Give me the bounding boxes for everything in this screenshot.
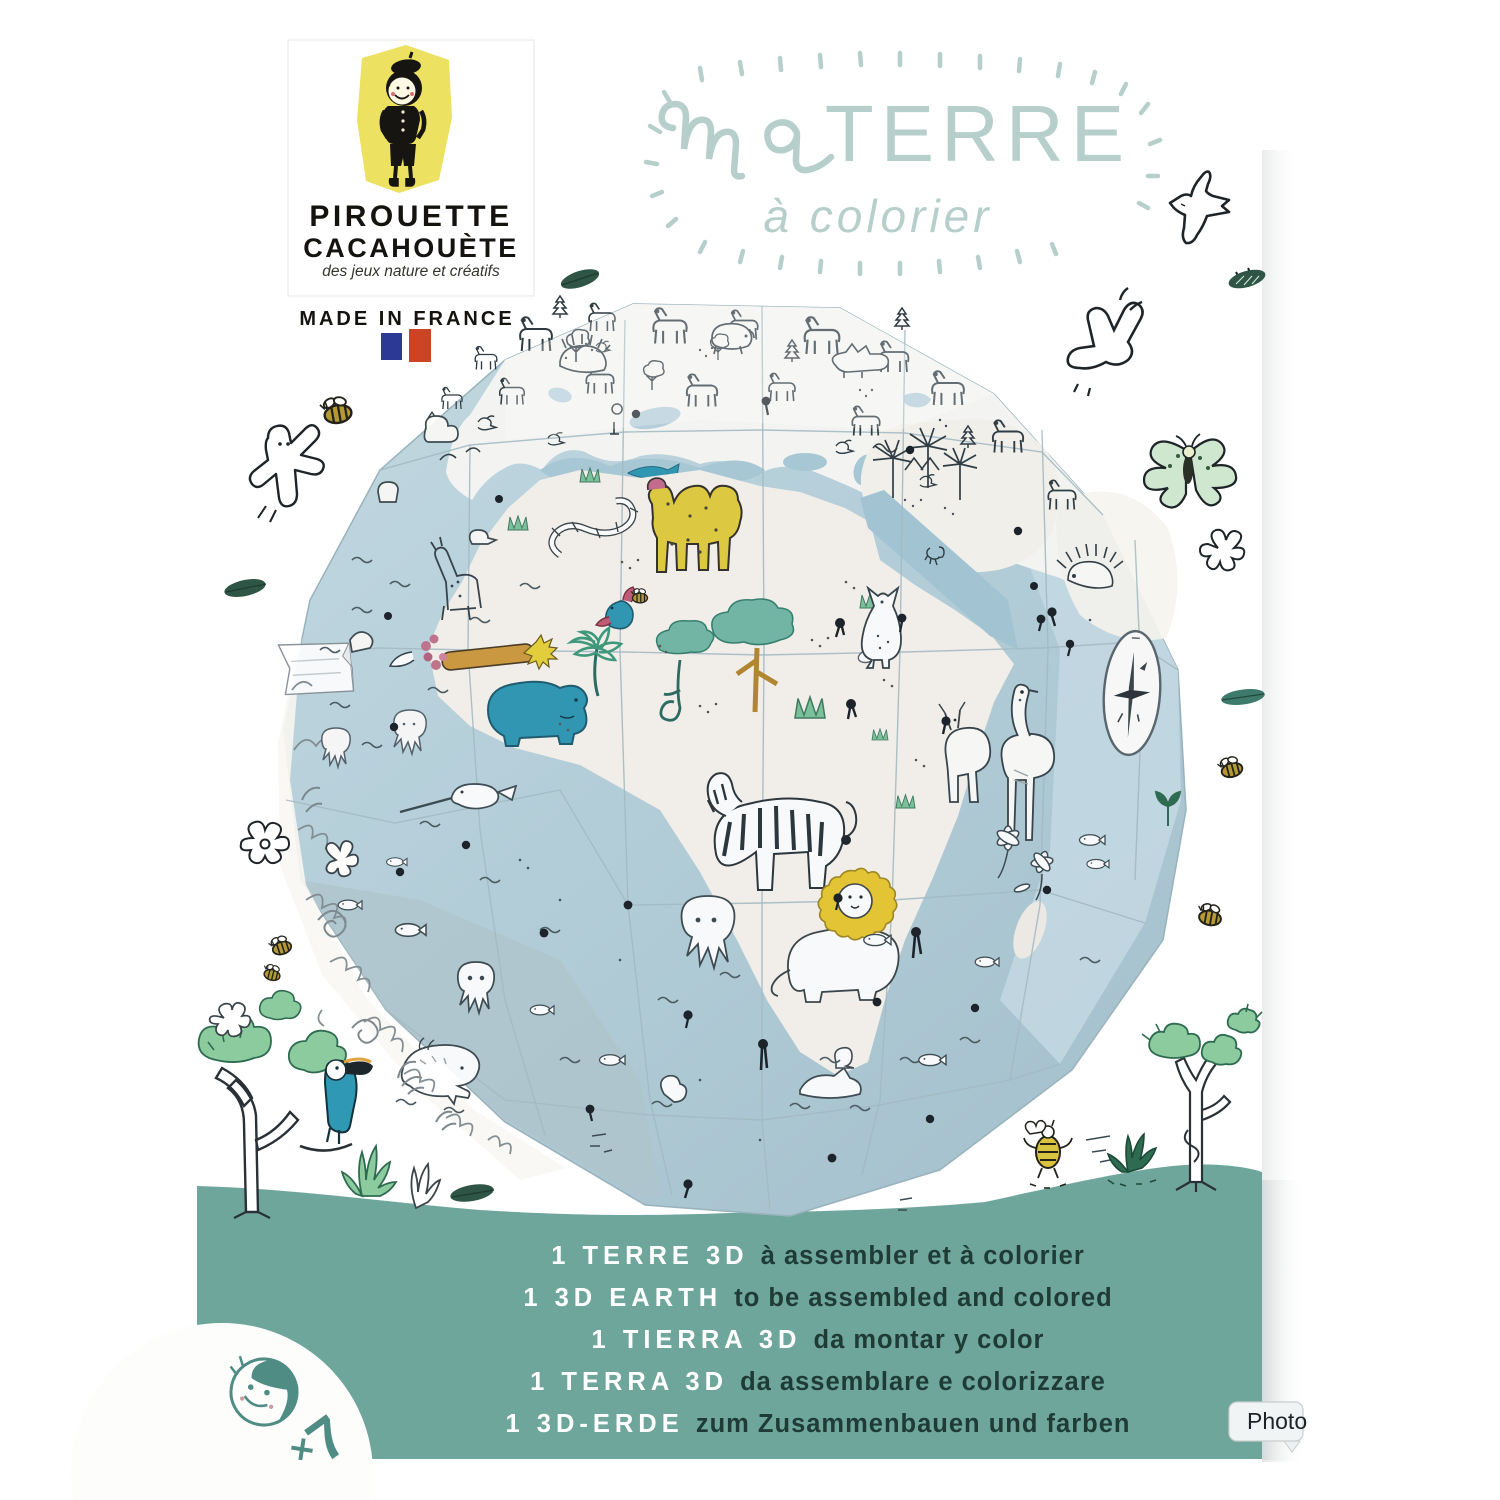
svg-text:à colorier: à colorier [763, 190, 992, 242]
svg-text:des jeux nature et créatifs: des jeux nature et créatifs [322, 263, 500, 280]
svg-text:CACAHOUÈTE: CACAHOUÈTE [303, 232, 519, 263]
svg-text:1 3D EARTH to be assembled and: 1 3D EARTH to be assembled and colored [523, 1284, 1112, 1312]
svg-text:1 TERRA 3D da assemblare e col: 1 TERRA 3D da assemblare e colorizzare [530, 1368, 1106, 1396]
svg-text:Photo: Photo [1247, 1408, 1307, 1434]
svg-text:MADE IN FRANCE: MADE IN FRANCE [299, 308, 514, 330]
svg-text:1 TIERRA 3D da montar y color: 1 TIERRA 3D da montar y color [592, 1326, 1045, 1354]
svg-text:TERRE: TERRE [825, 89, 1131, 178]
svg-text:PIROUETTE: PIROUETTE [309, 200, 512, 233]
svg-text:1 3D-ERDE zum Zusammenbauen un: 1 3D-ERDE zum Zusammenbauen und farben [506, 1410, 1131, 1438]
svg-text:1 TERRE 3D à assembler et à co: 1 TERRE 3D à assembler et à colorier [551, 1242, 1085, 1270]
